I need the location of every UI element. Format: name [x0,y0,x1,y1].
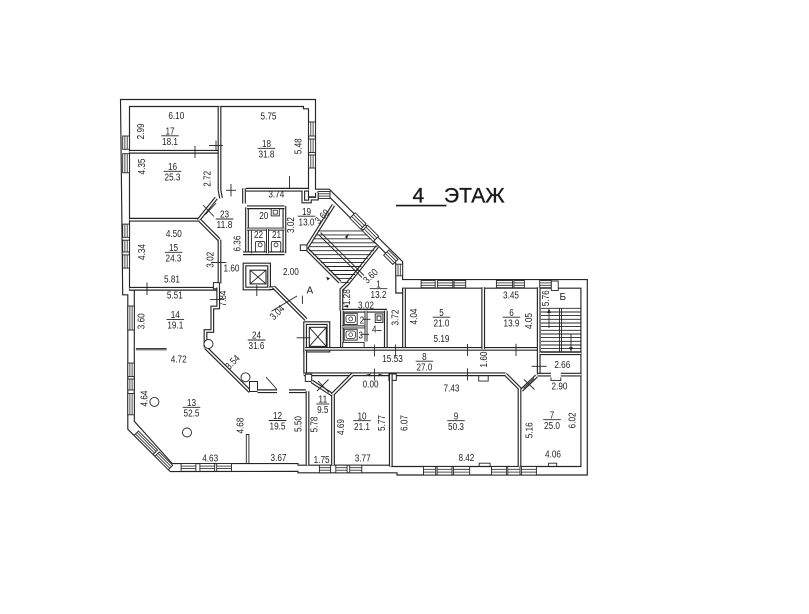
svg-text:4.69: 4.69 [336,419,347,435]
svg-text:3.02: 3.02 [286,217,297,233]
svg-text:4.35: 4.35 [137,158,148,174]
svg-text:3.72: 3.72 [391,309,402,325]
svg-text:4.68: 4.68 [235,417,246,433]
svg-text:5.77: 5.77 [377,415,388,431]
svg-text:2: 2 [360,316,365,327]
svg-text:4.34: 4.34 [137,244,148,260]
svg-text:2.99: 2.99 [136,123,147,139]
svg-text:5.75: 5.75 [261,111,277,122]
svg-text:5.76: 5.76 [541,290,552,306]
svg-text:4.72: 4.72 [171,355,187,366]
svg-text:1.60: 1.60 [479,351,490,367]
svg-text:4.63: 4.63 [202,454,218,465]
svg-text:31.8: 31.8 [259,150,275,161]
svg-text:5.81: 5.81 [164,274,180,285]
svg-text:3: 3 [358,330,363,341]
svg-text:4: 4 [413,185,425,208]
svg-text:3.74: 3.74 [268,189,284,200]
svg-text:11.8: 11.8 [217,220,233,231]
svg-text:20: 20 [259,211,268,222]
svg-text:8.42: 8.42 [458,453,474,464]
svg-text:9.5: 9.5 [317,405,329,416]
svg-text:ЭТАЖ: ЭТАЖ [444,185,505,208]
svg-text:Б: Б [560,292,567,303]
svg-text:5.51: 5.51 [167,290,183,301]
svg-text:21: 21 [272,230,281,241]
svg-text:6.07: 6.07 [399,415,410,431]
svg-text:6.02: 6.02 [567,412,578,428]
svg-text:27.0: 27.0 [416,362,432,373]
svg-text:2.72: 2.72 [203,170,214,186]
svg-text:25.3: 25.3 [165,173,181,184]
svg-text:18.1: 18.1 [162,137,178,148]
svg-text:19.1: 19.1 [167,321,183,332]
svg-text:А: А [306,286,313,297]
svg-text:3.45: 3.45 [503,291,519,302]
svg-text:3.67: 3.67 [271,453,287,464]
svg-text:7.43: 7.43 [444,384,460,395]
svg-text:1.60: 1.60 [224,263,240,274]
svg-text:4.04: 4.04 [409,308,420,324]
svg-text:0.00: 0.00 [363,380,379,391]
svg-text:6.36: 6.36 [232,235,243,251]
svg-text:52.5: 52.5 [184,409,200,420]
svg-text:2.66: 2.66 [554,360,570,371]
svg-text:1.75: 1.75 [314,455,330,466]
svg-text:4.05: 4.05 [524,313,535,329]
svg-text:4.06: 4.06 [545,449,561,460]
svg-text:4.64: 4.64 [139,390,150,406]
svg-text:50.3: 50.3 [448,422,464,433]
svg-text:3.02: 3.02 [358,301,374,312]
svg-text:6.10: 6.10 [168,111,184,122]
svg-text:5.16: 5.16 [524,422,535,438]
svg-text:22: 22 [254,230,263,241]
svg-text:15.53: 15.53 [382,354,403,365]
svg-text:3.60: 3.60 [136,313,147,329]
svg-text:31.6: 31.6 [249,341,265,352]
svg-text:2.00: 2.00 [283,267,299,278]
svg-text:21.1: 21.1 [354,422,370,433]
svg-text:4: 4 [372,325,377,336]
svg-text:13.9: 13.9 [504,318,520,329]
svg-text:7.84: 7.84 [218,290,229,306]
svg-text:21.0: 21.0 [434,318,450,329]
svg-text:2.90: 2.90 [552,382,568,393]
svg-text:5.19: 5.19 [434,334,450,345]
svg-text:13.2: 13.2 [371,290,387,301]
svg-text:1.28: 1.28 [342,289,353,305]
svg-text:3.02: 3.02 [205,251,216,267]
svg-text:4.50: 4.50 [166,229,182,240]
svg-text:25.0: 25.0 [544,421,560,432]
svg-text:5.48: 5.48 [294,138,305,154]
svg-text:5.50: 5.50 [293,416,304,432]
svg-text:3.77: 3.77 [355,454,371,465]
svg-text:24.3: 24.3 [166,254,182,265]
svg-text:5.78: 5.78 [309,416,320,432]
svg-text:19.5: 19.5 [270,422,286,433]
